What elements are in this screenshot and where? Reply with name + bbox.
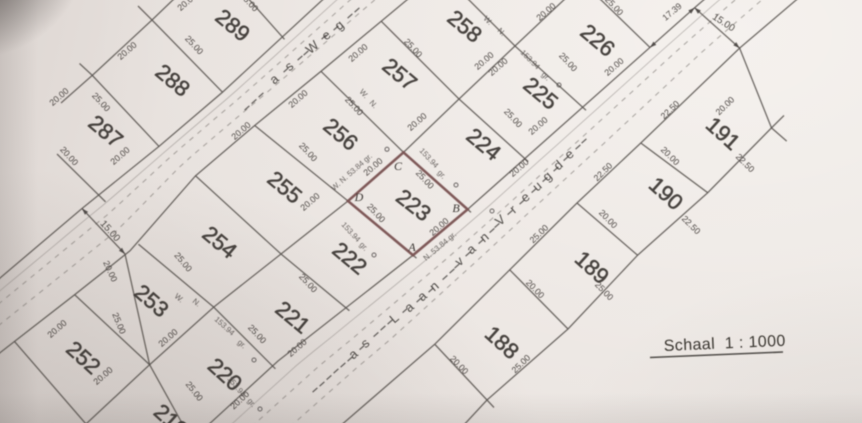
svg-text:20.00: 20.00 <box>534 1 557 23</box>
svg-text:25.00: 25.00 <box>414 168 436 191</box>
svg-text:20.00: 20.00 <box>526 115 549 137</box>
svg-text:20.00: 20.00 <box>115 40 138 62</box>
svg-text:a: a <box>463 241 479 258</box>
svg-text:25.00: 25.00 <box>502 106 524 129</box>
svg-text:g: g <box>331 17 346 33</box>
svg-text:254: 254 <box>198 221 242 264</box>
svg-text:20.00: 20.00 <box>156 327 179 349</box>
svg-text:20.00: 20.00 <box>45 318 68 340</box>
svg-text:g: g <box>539 168 554 184</box>
svg-text:a: a <box>345 346 361 363</box>
svg-text:25.00: 25.00 <box>365 201 387 224</box>
svg-text:25.00: 25.00 <box>238 0 260 13</box>
svg-text:289: 289 <box>211 4 255 47</box>
svg-text:gr.: gr. <box>436 168 448 180</box>
svg-text:25.00: 25.00 <box>297 140 319 163</box>
svg-text:20.00: 20.00 <box>175 0 198 13</box>
svg-text:224: 224 <box>462 123 506 166</box>
svg-text:15.00: 15.00 <box>710 12 737 35</box>
svg-text:219: 219 <box>149 399 193 423</box>
svg-text:25.00: 25.00 <box>297 271 319 294</box>
svg-text:20.00: 20.00 <box>405 111 428 133</box>
svg-text:v: v <box>452 253 467 269</box>
svg-text:288: 288 <box>151 59 195 102</box>
svg-text:e: e <box>517 189 532 205</box>
svg-text:22.50: 22.50 <box>680 214 703 237</box>
svg-text:25.00: 25.00 <box>184 379 205 403</box>
svg-text:20.00: 20.00 <box>524 278 547 301</box>
svg-text:221: 221 <box>271 296 315 339</box>
svg-text:C: C <box>394 159 403 173</box>
svg-text:190: 190 <box>644 172 688 215</box>
svg-text:25.00: 25.00 <box>402 36 424 59</box>
svg-text:A: A <box>407 240 416 254</box>
svg-text:188: 188 <box>480 321 524 364</box>
svg-text:257: 257 <box>378 53 422 96</box>
svg-text:25.00: 25.00 <box>110 311 128 335</box>
svg-text:e: e <box>318 27 333 43</box>
svg-text:189: 189 <box>570 246 614 289</box>
svg-text:191: 191 <box>701 112 745 155</box>
svg-text:253: 253 <box>129 279 173 322</box>
svg-text:N.: N. <box>191 297 203 309</box>
svg-text:255: 255 <box>263 166 307 209</box>
svg-text:20.00: 20.00 <box>714 95 737 118</box>
svg-text:20.00: 20.00 <box>597 208 620 231</box>
svg-text:256: 256 <box>319 113 363 156</box>
svg-text:22.50: 22.50 <box>659 99 682 122</box>
svg-text:W.: W. <box>173 292 186 305</box>
svg-text:20.00: 20.00 <box>58 144 80 167</box>
svg-text:W.: W. <box>358 87 371 100</box>
svg-text:N.: N. <box>368 98 380 110</box>
svg-text:25.00: 25.00 <box>172 250 194 273</box>
svg-text:d: d <box>550 157 565 173</box>
svg-text:25.00: 25.00 <box>183 33 205 56</box>
svg-text:287: 287 <box>84 110 128 153</box>
svg-text:B: B <box>452 201 460 215</box>
svg-text:Schaal 1 : 1000: Schaal 1 : 1000 <box>663 333 786 355</box>
svg-text:D: D <box>354 190 364 204</box>
svg-text:25.00: 25.00 <box>557 50 579 73</box>
svg-text:V: V <box>492 211 509 228</box>
svg-text:225: 225 <box>519 72 563 115</box>
svg-text:226: 226 <box>576 19 620 62</box>
svg-text:20.00: 20.00 <box>448 354 471 377</box>
svg-text:20.00: 20.00 <box>286 88 309 110</box>
svg-text:25.00: 25.00 <box>603 0 625 17</box>
svg-text:20.00: 20.00 <box>659 145 682 168</box>
svg-text:17.39: 17.39 <box>660 1 683 23</box>
svg-text:a: a <box>266 71 282 88</box>
svg-text:20.00: 20.00 <box>346 42 369 64</box>
svg-text:a: a <box>401 299 417 316</box>
svg-text:15.00: 15.00 <box>98 219 123 245</box>
